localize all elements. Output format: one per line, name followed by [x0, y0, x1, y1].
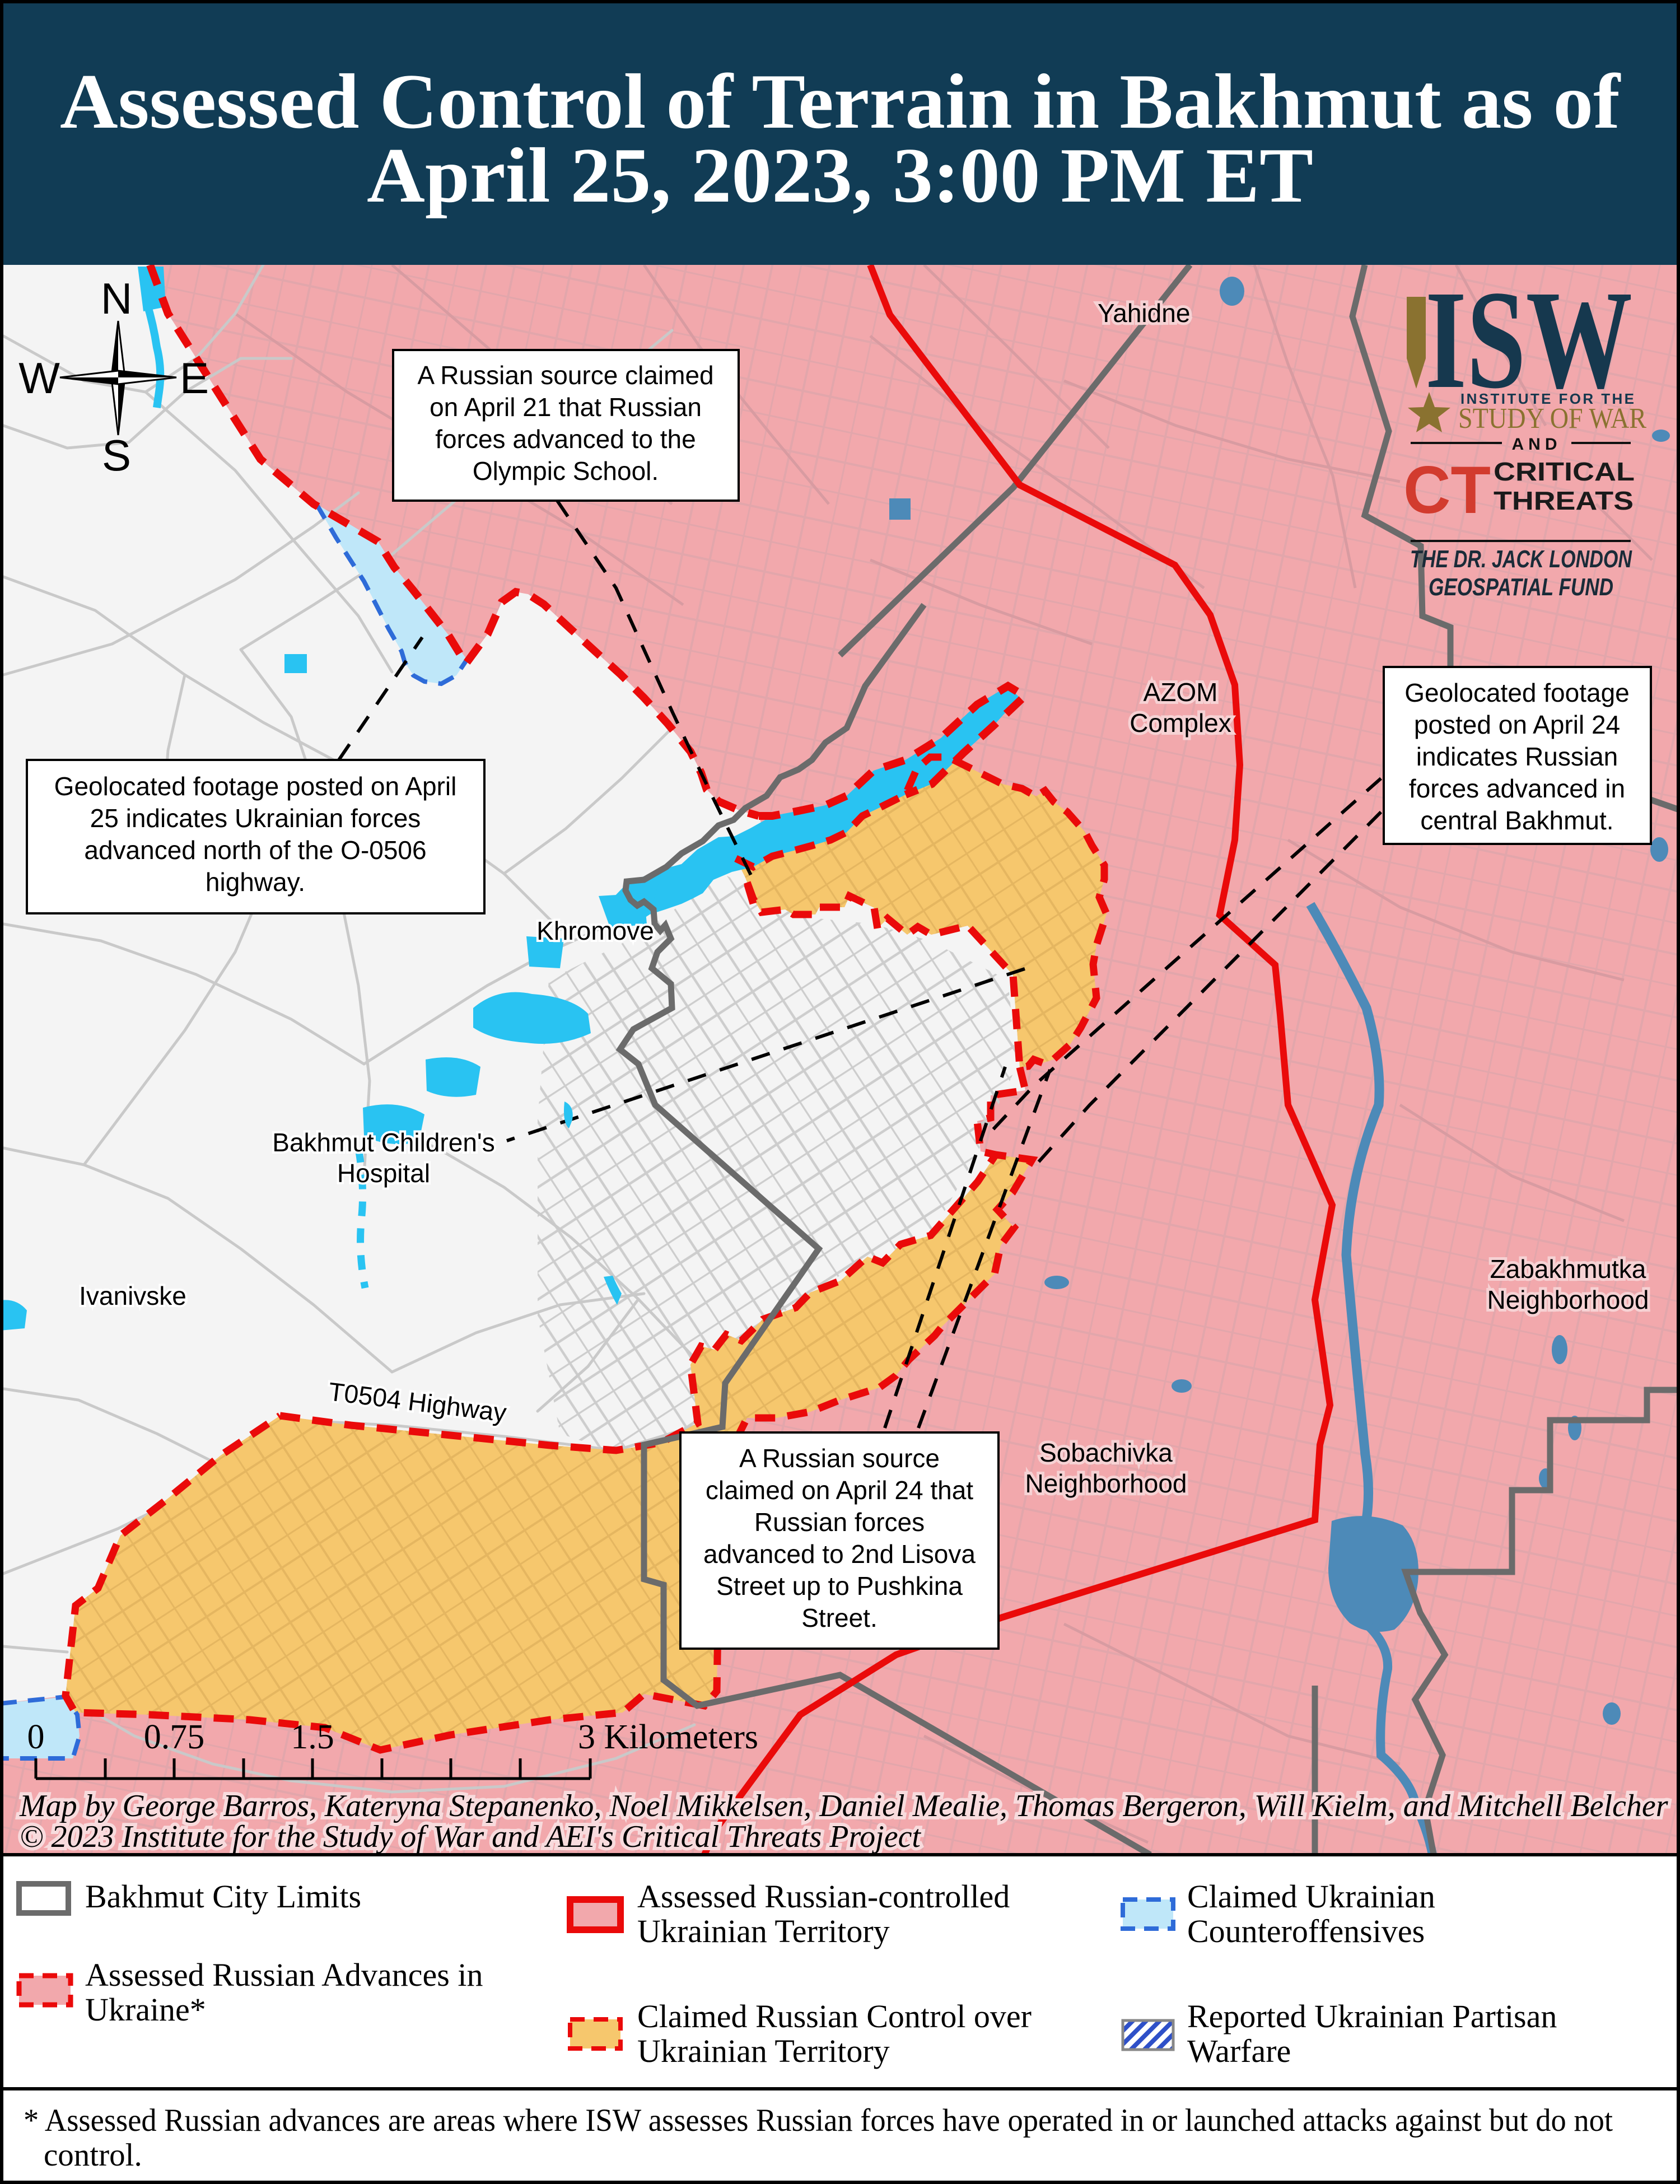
svg-text:Olympic School.: Olympic School.	[473, 456, 659, 486]
svg-text:Claimed Ukrainian: Claimed Ukrainian	[1187, 1878, 1435, 1915]
svg-text:Assessed Russian Advances in: Assessed Russian Advances in	[85, 1957, 483, 1993]
svg-text:highway.: highway.	[206, 867, 305, 897]
svg-text:forces advanced to the: forces advanced to the	[435, 424, 696, 454]
svg-text:AND: AND	[1512, 435, 1562, 454]
svg-text:THE DR. JACK LONDON: THE DR. JACK LONDON	[1410, 545, 1632, 573]
svg-text:Zabakhmutka: Zabakhmutka	[1490, 1254, 1646, 1284]
svg-text:Claimed Russian Control over: Claimed Russian Control over	[637, 1998, 1032, 2034]
svg-text:Geolocated footage: Geolocated footage	[1404, 678, 1630, 707]
svg-text:Counteroffensives: Counteroffensives	[1187, 1913, 1425, 1949]
svg-text:Bakhmut City Limits: Bakhmut City Limits	[85, 1878, 361, 1915]
svg-text:THREATS: THREATS	[1494, 486, 1634, 515]
svg-text:Street up to Pushkina: Street up to Pushkina	[716, 1571, 963, 1600]
svg-text:CRITICAL: CRITICAL	[1494, 457, 1635, 486]
svg-text:indicates Russian: indicates Russian	[1416, 742, 1618, 771]
svg-text:A Russian source claimed: A Russian source claimed	[417, 361, 713, 390]
svg-text:0.75: 0.75	[144, 1718, 205, 1756]
svg-text:advanced north of the O-0506: advanced north of the O-0506	[84, 836, 426, 865]
svg-text:0: 0	[27, 1718, 45, 1756]
svg-text:N: N	[101, 274, 132, 323]
svg-text:© 2023 Institute for the Study: © 2023 Institute for the Study of War an…	[20, 1819, 921, 1854]
svg-text:Complex: Complex	[1130, 708, 1231, 738]
svg-text:Ukrainian Territory: Ukrainian Territory	[637, 1913, 890, 1949]
svg-text:CT: CT	[1403, 452, 1491, 528]
svg-text:Reported Ukrainian Partisan: Reported Ukrainian Partisan	[1187, 1998, 1557, 2034]
svg-text:Assessed Russian-controlled: Assessed Russian-controlled	[637, 1878, 1010, 1915]
svg-text:on April 21 that Russian: on April 21 that Russian	[430, 393, 702, 422]
svg-text:posted on April 24: posted on April 24	[1414, 710, 1620, 739]
svg-text:Geolocated footage posted on A: Geolocated footage posted on April	[54, 772, 457, 801]
svg-text:Russian forces: Russian forces	[754, 1508, 925, 1537]
svg-text:Ukraine*: Ukraine*	[85, 1991, 206, 2028]
svg-text:claimed on April 24 that: claimed on April 24 that	[706, 1476, 973, 1505]
svg-text:Hospital: Hospital	[337, 1159, 430, 1188]
svg-text:S: S	[102, 431, 131, 480]
svg-text:Ukrainian Territory: Ukrainian Territory	[637, 2033, 890, 2069]
svg-text:STUDY OF WAR: STUDY OF WAR	[1458, 403, 1646, 435]
svg-text:E: E	[180, 353, 209, 403]
svg-text:Neighborhood: Neighborhood	[1025, 1469, 1187, 1498]
svg-text:Bakhmut Children's: Bakhmut Children's	[272, 1128, 494, 1157]
svg-text:W: W	[18, 353, 60, 403]
svg-text:Street.: Street.	[801, 1603, 878, 1632]
svg-text:GEOSPATIAL FUND: GEOSPATIAL FUND	[1429, 573, 1613, 601]
svg-text:Warfare: Warfare	[1187, 2033, 1291, 2069]
svg-text:central Bakhmut.: central Bakhmut.	[1420, 806, 1613, 835]
svg-text:1.5: 1.5	[291, 1718, 334, 1756]
svg-text:Yahidne: Yahidne	[1098, 298, 1190, 328]
svg-text:25 indicates Ukrainian forces: 25 indicates Ukrainian forces	[90, 804, 421, 833]
svg-text:A Russian source: A Russian source	[739, 1444, 940, 1473]
svg-text:control.: control.	[44, 2138, 142, 2173]
svg-text:forces advanced in: forces advanced in	[1409, 774, 1625, 803]
svg-text:advanced to 2nd Lisova: advanced to 2nd Lisova	[703, 1539, 976, 1569]
svg-text:Khromove: Khromove	[536, 916, 654, 945]
svg-text:3 Kilometers: 3 Kilometers	[578, 1718, 758, 1756]
svg-text:AZOM: AZOM	[1144, 678, 1218, 707]
svg-text:Map by George Barros, Kateryna: Map by George Barros, Kateryna Stepanenk…	[19, 1789, 1668, 1823]
svg-text:Sobachivka: Sobachivka	[1039, 1438, 1173, 1467]
svg-text:Neighborhood: Neighborhood	[1487, 1285, 1649, 1314]
svg-text:* Assessed Russian advances ar: * Assessed Russian advances are areas wh…	[24, 2103, 1613, 2138]
svg-text:Ivanivske: Ivanivske	[79, 1281, 186, 1310]
svg-text:April 25, 2023, 3:00 PM ET: April 25, 2023, 3:00 PM ET	[367, 132, 1313, 219]
